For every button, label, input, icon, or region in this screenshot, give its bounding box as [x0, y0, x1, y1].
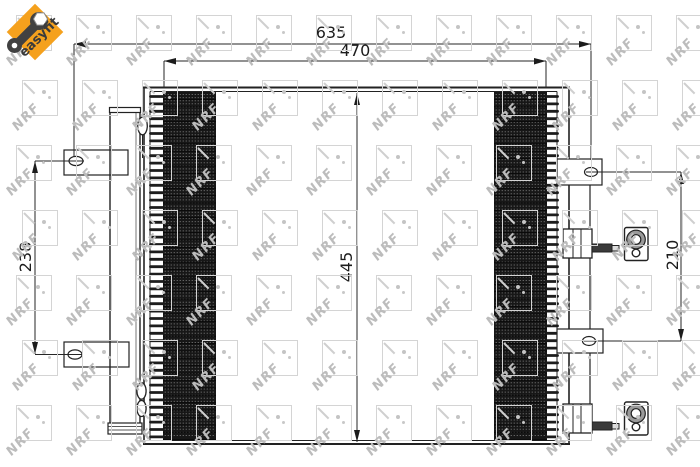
mount-brackets-right — [557, 159, 603, 404]
condenser-drawing: 635 470 445 238 — [0, 0, 700, 467]
drier-bottom-cap — [108, 423, 142, 434]
arrow-up — [32, 161, 38, 173]
technical-drawing-canvas: 635 470 445 238 — [0, 0, 700, 467]
stud-top — [592, 244, 612, 252]
dim-label-left-bracket-pitch: 238 — [16, 242, 35, 273]
dim-label-total-width: 635 — [316, 23, 347, 42]
arrow-right — [579, 41, 591, 48]
port-bolt-hole-bottom — [632, 423, 640, 431]
port-block-bottom — [625, 402, 649, 435]
fin-comb-left — [151, 97, 164, 437]
arrow-down — [32, 342, 38, 354]
mount-brackets-left — [64, 150, 129, 367]
easyfit-badge: easyfit — [0, 0, 72, 72]
arrow-up — [354, 93, 360, 105]
dimension-core-height: 445 — [337, 93, 360, 442]
dimension-core-width: 470 — [164, 41, 546, 88]
dim-label-right-bracket-pitch: 210 — [663, 240, 682, 271]
arrow-up — [678, 172, 684, 184]
stud-bottom — [592, 422, 612, 430]
port-bolt-hole-top — [632, 249, 640, 257]
fitting-bottom-right — [563, 402, 648, 435]
port-block-top — [625, 228, 649, 261]
drier-top-cap — [110, 108, 141, 113]
fitting-top-right — [563, 228, 648, 261]
dim-label-core-width: 470 — [340, 41, 371, 60]
fin-comb-right — [547, 97, 558, 437]
drier-connector-bottom-1 — [137, 383, 146, 399]
dim-label-core-height: 445 — [337, 252, 356, 283]
arrow-down — [678, 329, 684, 341]
drier-connector-bottom-2 — [137, 401, 146, 417]
drier-connector-top — [138, 117, 148, 135]
arrow-left — [74, 41, 86, 48]
arrow-right — [534, 58, 546, 65]
dimension-left-bracket-pitch: 238 — [16, 161, 84, 355]
arrow-left — [164, 58, 176, 65]
